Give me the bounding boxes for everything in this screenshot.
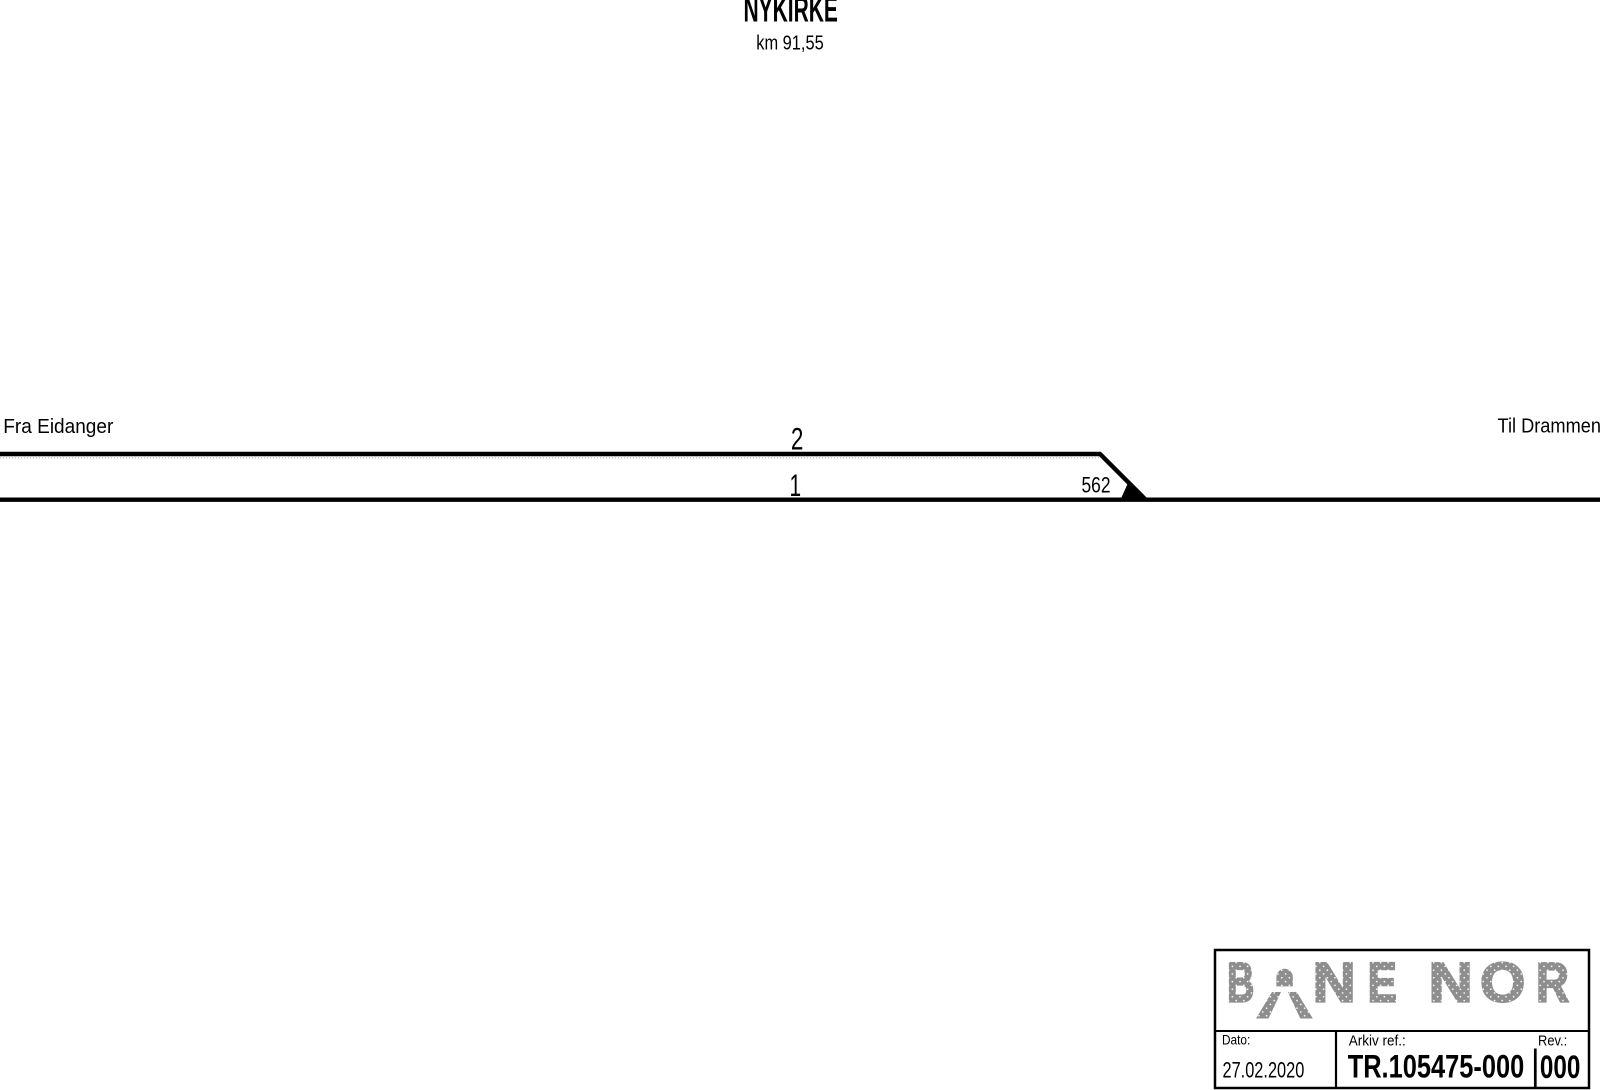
svg-text:2: 2 bbox=[791, 421, 804, 457]
svg-text:Til Drammen: Til Drammen bbox=[1498, 415, 1600, 438]
svg-text:Arkiv ref.:: Arkiv ref.: bbox=[1349, 1033, 1406, 1050]
svg-text:km 91,55: km 91,55 bbox=[756, 32, 824, 55]
svg-text:Fra Eidanger: Fra Eidanger bbox=[3, 415, 113, 438]
svg-text:562: 562 bbox=[1082, 473, 1111, 498]
svg-text:TR.105475-000: TR.105475-000 bbox=[1348, 1049, 1525, 1085]
svg-text:Rev.:: Rev.: bbox=[1538, 1033, 1567, 1050]
svg-text:000: 000 bbox=[1540, 1049, 1581, 1085]
svg-text:NYKIRKE: NYKIRKE bbox=[743, 0, 838, 30]
svg-text:Dato:: Dato: bbox=[1222, 1032, 1250, 1048]
svg-text:27.02.2020: 27.02.2020 bbox=[1223, 1058, 1305, 1083]
